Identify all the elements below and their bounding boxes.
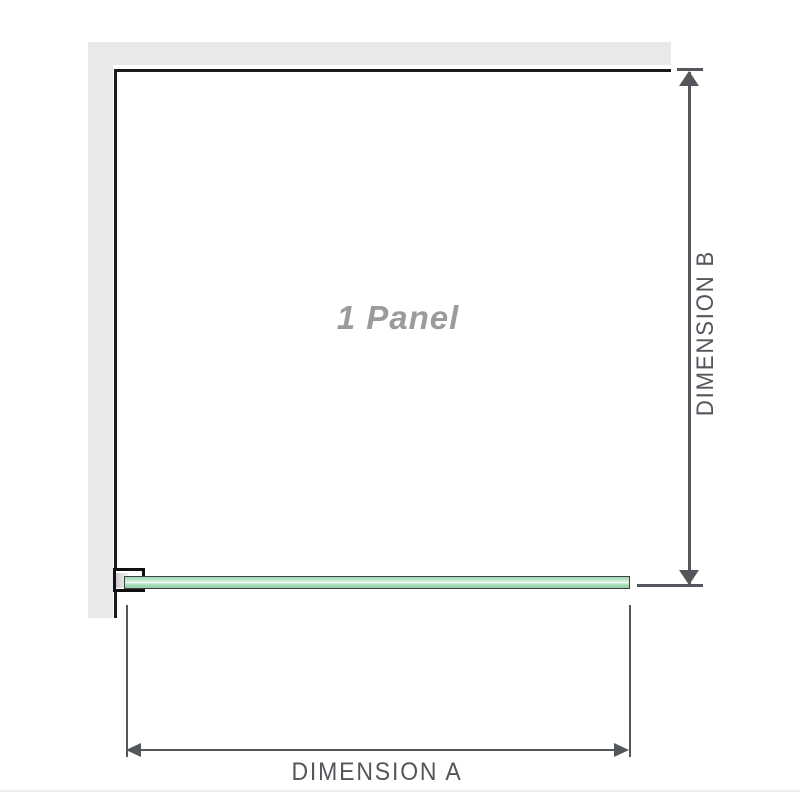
dimension-a-line [130,749,625,752]
dimension-a-extension-left [126,605,129,757]
panel-count-label: 1 Panel [288,297,508,339]
wall-top-strip [88,42,671,65]
glass-panel-bar [124,576,630,589]
panel-top-edge [114,69,671,72]
dimension-a-arrowhead-right [614,743,629,757]
panel-dimension-diagram: 1 Panel DIMENSION B DIMENSION A [0,0,800,800]
dimension-b-label: DIMENSION B [693,213,719,452]
dimension-b-arrowhead-down [679,570,699,585]
dimension-a-label: DIMENSION A [262,758,492,786]
wall-left-strip [88,42,113,618]
dimension-b-arrowhead-up [679,71,699,86]
page-bottom-divider [0,790,800,792]
dimension-a-extension-right [629,605,632,757]
panel-left-edge [114,69,117,618]
dimension-a-arrowhead-left [126,743,141,757]
dimension-b-line [688,72,691,585]
